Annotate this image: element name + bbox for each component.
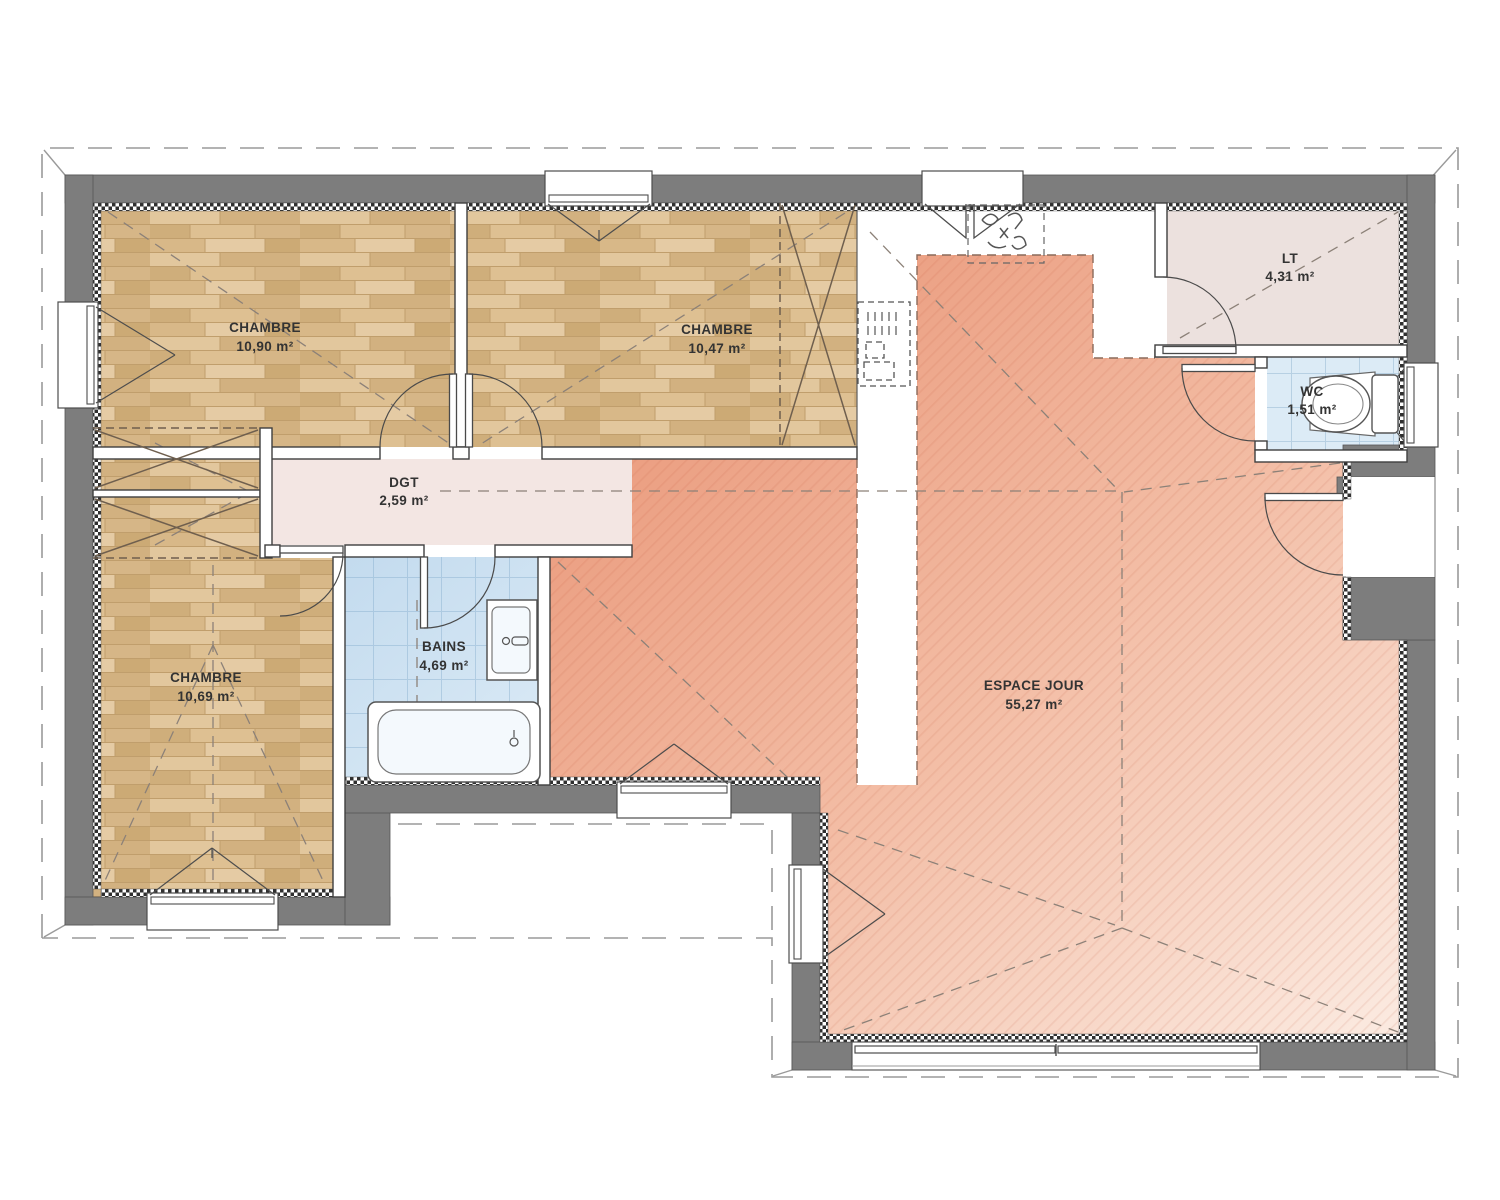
label-chambre3-name: CHAMBRE [170,670,242,685]
label-bains-area: 4,69 m² [419,658,468,673]
label-cellier-name: LT [1282,251,1299,266]
label-wc-name: WC [1300,384,1323,399]
label-degagement-name: DGT [389,475,419,490]
label-cellier-area: 4,31 m² [1265,269,1314,284]
label-bains-name: BAINS [422,639,466,654]
label-chambre1-name: CHAMBRE [229,320,301,335]
floor-chambre2 [467,203,857,447]
kitchen-sink-icon [858,302,910,386]
label-chambre3-area: 10,69 m² [177,689,234,704]
floor-degagement [272,459,632,545]
label-chambre1-area: 10,90 m² [236,339,293,354]
floor-plan-page: CHAMBRE 10,90 m² CHAMBRE 10,47 m² CHAMBR… [0,0,1500,1200]
entry-niche [1346,477,1435,577]
floor-plan-canvas: CHAMBRE 10,90 m² CHAMBRE 10,47 m² CHAMBR… [0,0,1500,1200]
sliding-bay-windows [852,1042,1260,1070]
label-wc-area: 1,51 m² [1287,402,1336,417]
label-chambre2-name: CHAMBRE [681,322,753,337]
label-degagement-area: 2,59 m² [379,493,428,508]
label-espace-jour-name: ESPACE JOUR [984,678,1084,693]
bathtub-icon [368,702,540,782]
label-espace-jour-area: 55,27 m² [1005,697,1062,712]
sink-icon [487,600,537,680]
label-chambre2-area: 10,47 m² [688,341,745,356]
